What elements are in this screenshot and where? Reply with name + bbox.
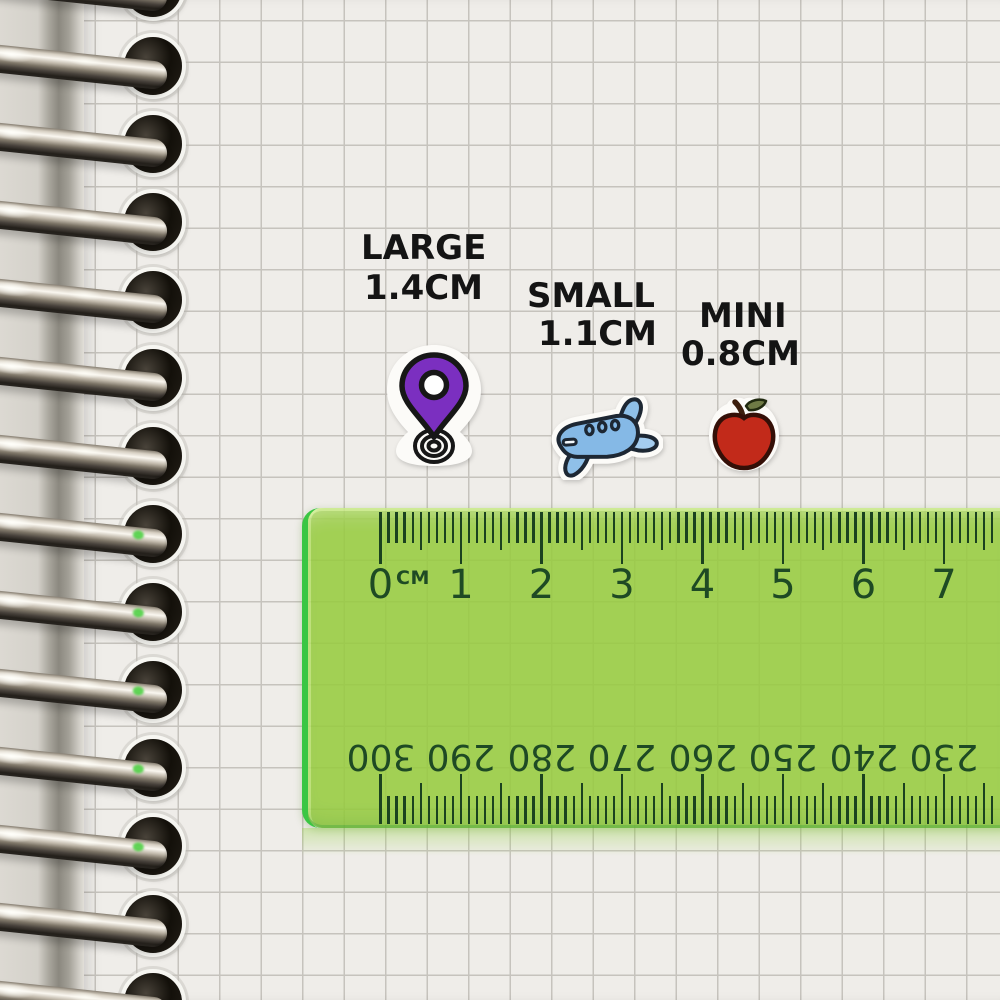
ruler-tick (677, 512, 679, 543)
ruler-tick (621, 774, 623, 824)
ruler-mm-number: 260 (668, 736, 737, 777)
ruler-tick (452, 796, 454, 824)
spiral-ring (0, 729, 195, 807)
ruler-tick (460, 512, 462, 564)
ruler-tick (524, 796, 526, 824)
ruler-tick (613, 512, 615, 543)
ruler-tick (782, 512, 784, 564)
ruler-tick (452, 512, 454, 543)
ruler-tick (991, 796, 993, 824)
ruler-tick (766, 512, 768, 543)
label-large-size: 1.4CM (364, 268, 483, 308)
ruler-tick (830, 796, 832, 824)
ruler-tick (476, 512, 478, 543)
ruler-tick (524, 512, 526, 543)
spiral-ring (0, 27, 195, 105)
ruler-tick (878, 796, 880, 824)
spiral-ring (0, 0, 195, 27)
ruler-tick (822, 512, 824, 550)
ruler-mm-number: 280 (507, 736, 576, 777)
ruler-tick (951, 512, 953, 543)
ruler-tick (436, 512, 438, 543)
ruler-tick (379, 512, 381, 564)
ruler-tick (709, 512, 711, 543)
ruler-tick (975, 796, 977, 824)
label-small-name: SMALL (527, 276, 655, 316)
label-large-name: LARGE (361, 228, 486, 268)
ruler-tick (903, 512, 905, 550)
ruler-tick (516, 796, 518, 824)
ruler-tick (943, 774, 945, 824)
ruler-tick (460, 774, 462, 824)
ruler-tick (605, 796, 607, 824)
spiral-ring (0, 339, 195, 417)
ruler-tick (516, 512, 518, 543)
airplane-sticker (543, 396, 663, 480)
ruler-tick (444, 796, 446, 824)
ruler-tick (677, 796, 679, 824)
ruler-tick (484, 512, 486, 543)
ruler-tick (556, 796, 558, 824)
ruler-tick (895, 512, 897, 543)
ruler-tick (508, 796, 510, 824)
ruler-tick (806, 796, 808, 824)
ruler-tick (395, 512, 397, 543)
label-mini-name: MINI (699, 296, 787, 336)
ruler-tick (935, 796, 937, 824)
ruler-tick (983, 512, 985, 550)
ruler-tick (605, 512, 607, 543)
ruler-tick (878, 512, 880, 543)
ruler-tick (412, 796, 414, 824)
ruler-tick (766, 796, 768, 824)
ruler-tick (581, 783, 583, 824)
ruler-tick (693, 796, 695, 824)
ruler-tick (806, 512, 808, 543)
ruler-tick (468, 796, 470, 824)
ruler-tick (790, 512, 792, 543)
ruler-tick (629, 512, 631, 543)
ruler-cm-number: 5 (770, 562, 795, 608)
spiral-ring (0, 183, 195, 261)
ruler-tick (725, 796, 727, 824)
green-reflection (132, 530, 144, 540)
ruler-tick (508, 512, 510, 543)
spiral-ring (0, 417, 195, 495)
ruler-tick (500, 512, 502, 550)
ruler-tick (532, 796, 534, 824)
ruler-tick (798, 796, 800, 824)
ruler-tick (540, 512, 542, 564)
ruler-tick (420, 512, 422, 550)
ruler-tick (645, 512, 647, 543)
ruler-tick (870, 512, 872, 543)
ruler-tick (597, 512, 599, 543)
ruler-tick (750, 796, 752, 824)
ruler-cm-number: 2 (529, 562, 554, 608)
ruler-tick (621, 512, 623, 564)
spiral-ring (0, 963, 195, 1000)
ruler-tick (991, 512, 993, 543)
ruler-tick (420, 783, 422, 824)
ruler-tick (943, 512, 945, 564)
ruler-tick (895, 796, 897, 824)
ruler-tick (629, 796, 631, 824)
ruler-tick (911, 512, 913, 543)
green-reflection (132, 842, 144, 852)
pin-center-hole (422, 373, 447, 398)
ruler-tick (975, 512, 977, 543)
ruler-tick (701, 512, 703, 564)
ruler-tick (387, 512, 389, 543)
ruler-tick (919, 796, 921, 824)
ruler-cm-number: 7 (931, 562, 956, 608)
ruler-tick (822, 783, 824, 824)
ruler-tick (927, 796, 929, 824)
ruler-tick (886, 512, 888, 543)
ruler-unit-label: CM (396, 567, 430, 589)
ruler-tick (653, 796, 655, 824)
ruler-tick (589, 512, 591, 543)
ruler-tick (428, 796, 430, 824)
ruler-tick (548, 796, 550, 824)
ruler-cm-number: 3 (609, 562, 634, 608)
ruler-tick (532, 512, 534, 543)
label-small-size: 1.1CM (538, 314, 657, 354)
ruler-tick (661, 783, 663, 824)
green-reflection (132, 608, 144, 618)
ruler-tick (589, 796, 591, 824)
spiral-ring (0, 651, 195, 729)
ruler-tick (573, 796, 575, 824)
ruler-tick (709, 796, 711, 824)
ruler-tick (637, 796, 639, 824)
ruler-tick (774, 512, 776, 543)
ruler-tick (758, 796, 760, 824)
spiral-ring (0, 807, 195, 885)
ruler-tick (653, 512, 655, 543)
ruler-tick (492, 512, 494, 543)
ruler-cm-number: 4 (690, 562, 715, 608)
ruler-cm-number: 1 (448, 562, 473, 608)
ruler-mm-number: 290 (427, 736, 496, 777)
ruler-tick (886, 796, 888, 824)
ruler-tick (862, 774, 864, 824)
ruler-tick (540, 774, 542, 824)
ruler-cm-number: 6 (851, 562, 876, 608)
ruler-tick (685, 796, 687, 824)
ruler-tick (846, 512, 848, 543)
ruler-tick (597, 796, 599, 824)
ruler-tick (484, 796, 486, 824)
ruler-tick (967, 512, 969, 543)
ruler-tick (669, 512, 671, 543)
ruler-tick (444, 512, 446, 543)
spiral-ring (0, 885, 195, 963)
green-reflection (132, 764, 144, 774)
ruler-mm-number: 250 (749, 736, 818, 777)
ruler-tick (814, 512, 816, 543)
ruler-tick (637, 512, 639, 543)
location-pin-sticker (382, 342, 486, 468)
ruler-tick (412, 512, 414, 543)
ruler-tick (919, 512, 921, 543)
ruler-tick (983, 783, 985, 824)
ruler-tick (814, 796, 816, 824)
ruler-tick (846, 796, 848, 824)
ruler-tick (701, 774, 703, 824)
ruler-tick (548, 512, 550, 543)
ruler-mm-number: 270 (588, 736, 657, 777)
ruler-tick (387, 796, 389, 824)
ruler-tick (403, 512, 405, 543)
ruler-tick (395, 796, 397, 824)
ruler-tick (903, 783, 905, 824)
ruler-tick (403, 796, 405, 824)
ruler-tick (854, 796, 856, 824)
ruler-mm-number: 230 (910, 736, 979, 777)
ruler-tick (935, 512, 937, 543)
ruler-tick (685, 512, 687, 543)
ruler-tick (838, 512, 840, 543)
ruler-tick (782, 774, 784, 824)
green-ruler: CM 01234567300290280270260250240230 (302, 508, 1000, 828)
ruler-scale: CM 01234567300290280270260250240230 (308, 508, 1000, 828)
ruler-mm-number: 240 (829, 736, 898, 777)
ruler-tick (750, 512, 752, 543)
ruler-tick (959, 796, 961, 824)
spiral-ring (0, 105, 195, 183)
ruler-tick (951, 796, 953, 824)
ruler-tick (379, 774, 381, 824)
ruler-tick (838, 796, 840, 824)
ruler-cm-number: 0 (368, 562, 393, 608)
ruler-tick (927, 512, 929, 543)
ruler-tick (830, 512, 832, 543)
ruler-tick (725, 512, 727, 543)
ruler-tick (774, 796, 776, 824)
green-reflection (132, 686, 144, 696)
ruler-tick (669, 796, 671, 824)
ruler-tick (556, 512, 558, 543)
ruler-tick (742, 783, 744, 824)
ruler-tick (581, 512, 583, 550)
label-mini-size: 0.8CM (681, 334, 800, 374)
ruler-tick (428, 512, 430, 543)
ruler-tick (717, 512, 719, 543)
ruler-tick (911, 796, 913, 824)
ruler-mm-number: 300 (346, 736, 415, 777)
ruler-tick (967, 796, 969, 824)
ruler-reflection (302, 828, 1000, 856)
ruler-tick (564, 796, 566, 824)
ruler-tick (492, 796, 494, 824)
spiral-ring (0, 495, 195, 573)
ruler-tick (661, 512, 663, 550)
ruler-tick (468, 512, 470, 543)
apple-icon (715, 415, 773, 468)
ruler-tick (854, 512, 856, 543)
ruler-tick (564, 512, 566, 543)
spiral-ring (0, 261, 195, 339)
ruler-tick (436, 796, 438, 824)
ruler-tick (573, 512, 575, 543)
ruler-tick (870, 796, 872, 824)
ruler-tick (693, 512, 695, 543)
ruler-tick (613, 796, 615, 824)
apple-sticker (706, 394, 782, 474)
ruler-tick (734, 512, 736, 543)
ruler-tick (758, 512, 760, 543)
spiral-ring (0, 573, 195, 651)
notebook-photo: LARGE 1.4CM SMALL 1.1CM MINI 0.8CM (0, 0, 1000, 1000)
ruler-tick (959, 512, 961, 543)
ruler-tick (742, 512, 744, 550)
ruler-tick (476, 796, 478, 824)
ruler-tick (734, 796, 736, 824)
ruler-tick (798, 512, 800, 543)
ruler-tick (790, 796, 792, 824)
ruler-tick (645, 796, 647, 824)
ruler-tick (500, 783, 502, 824)
ruler-tick (862, 512, 864, 564)
ruler-tick (717, 796, 719, 824)
